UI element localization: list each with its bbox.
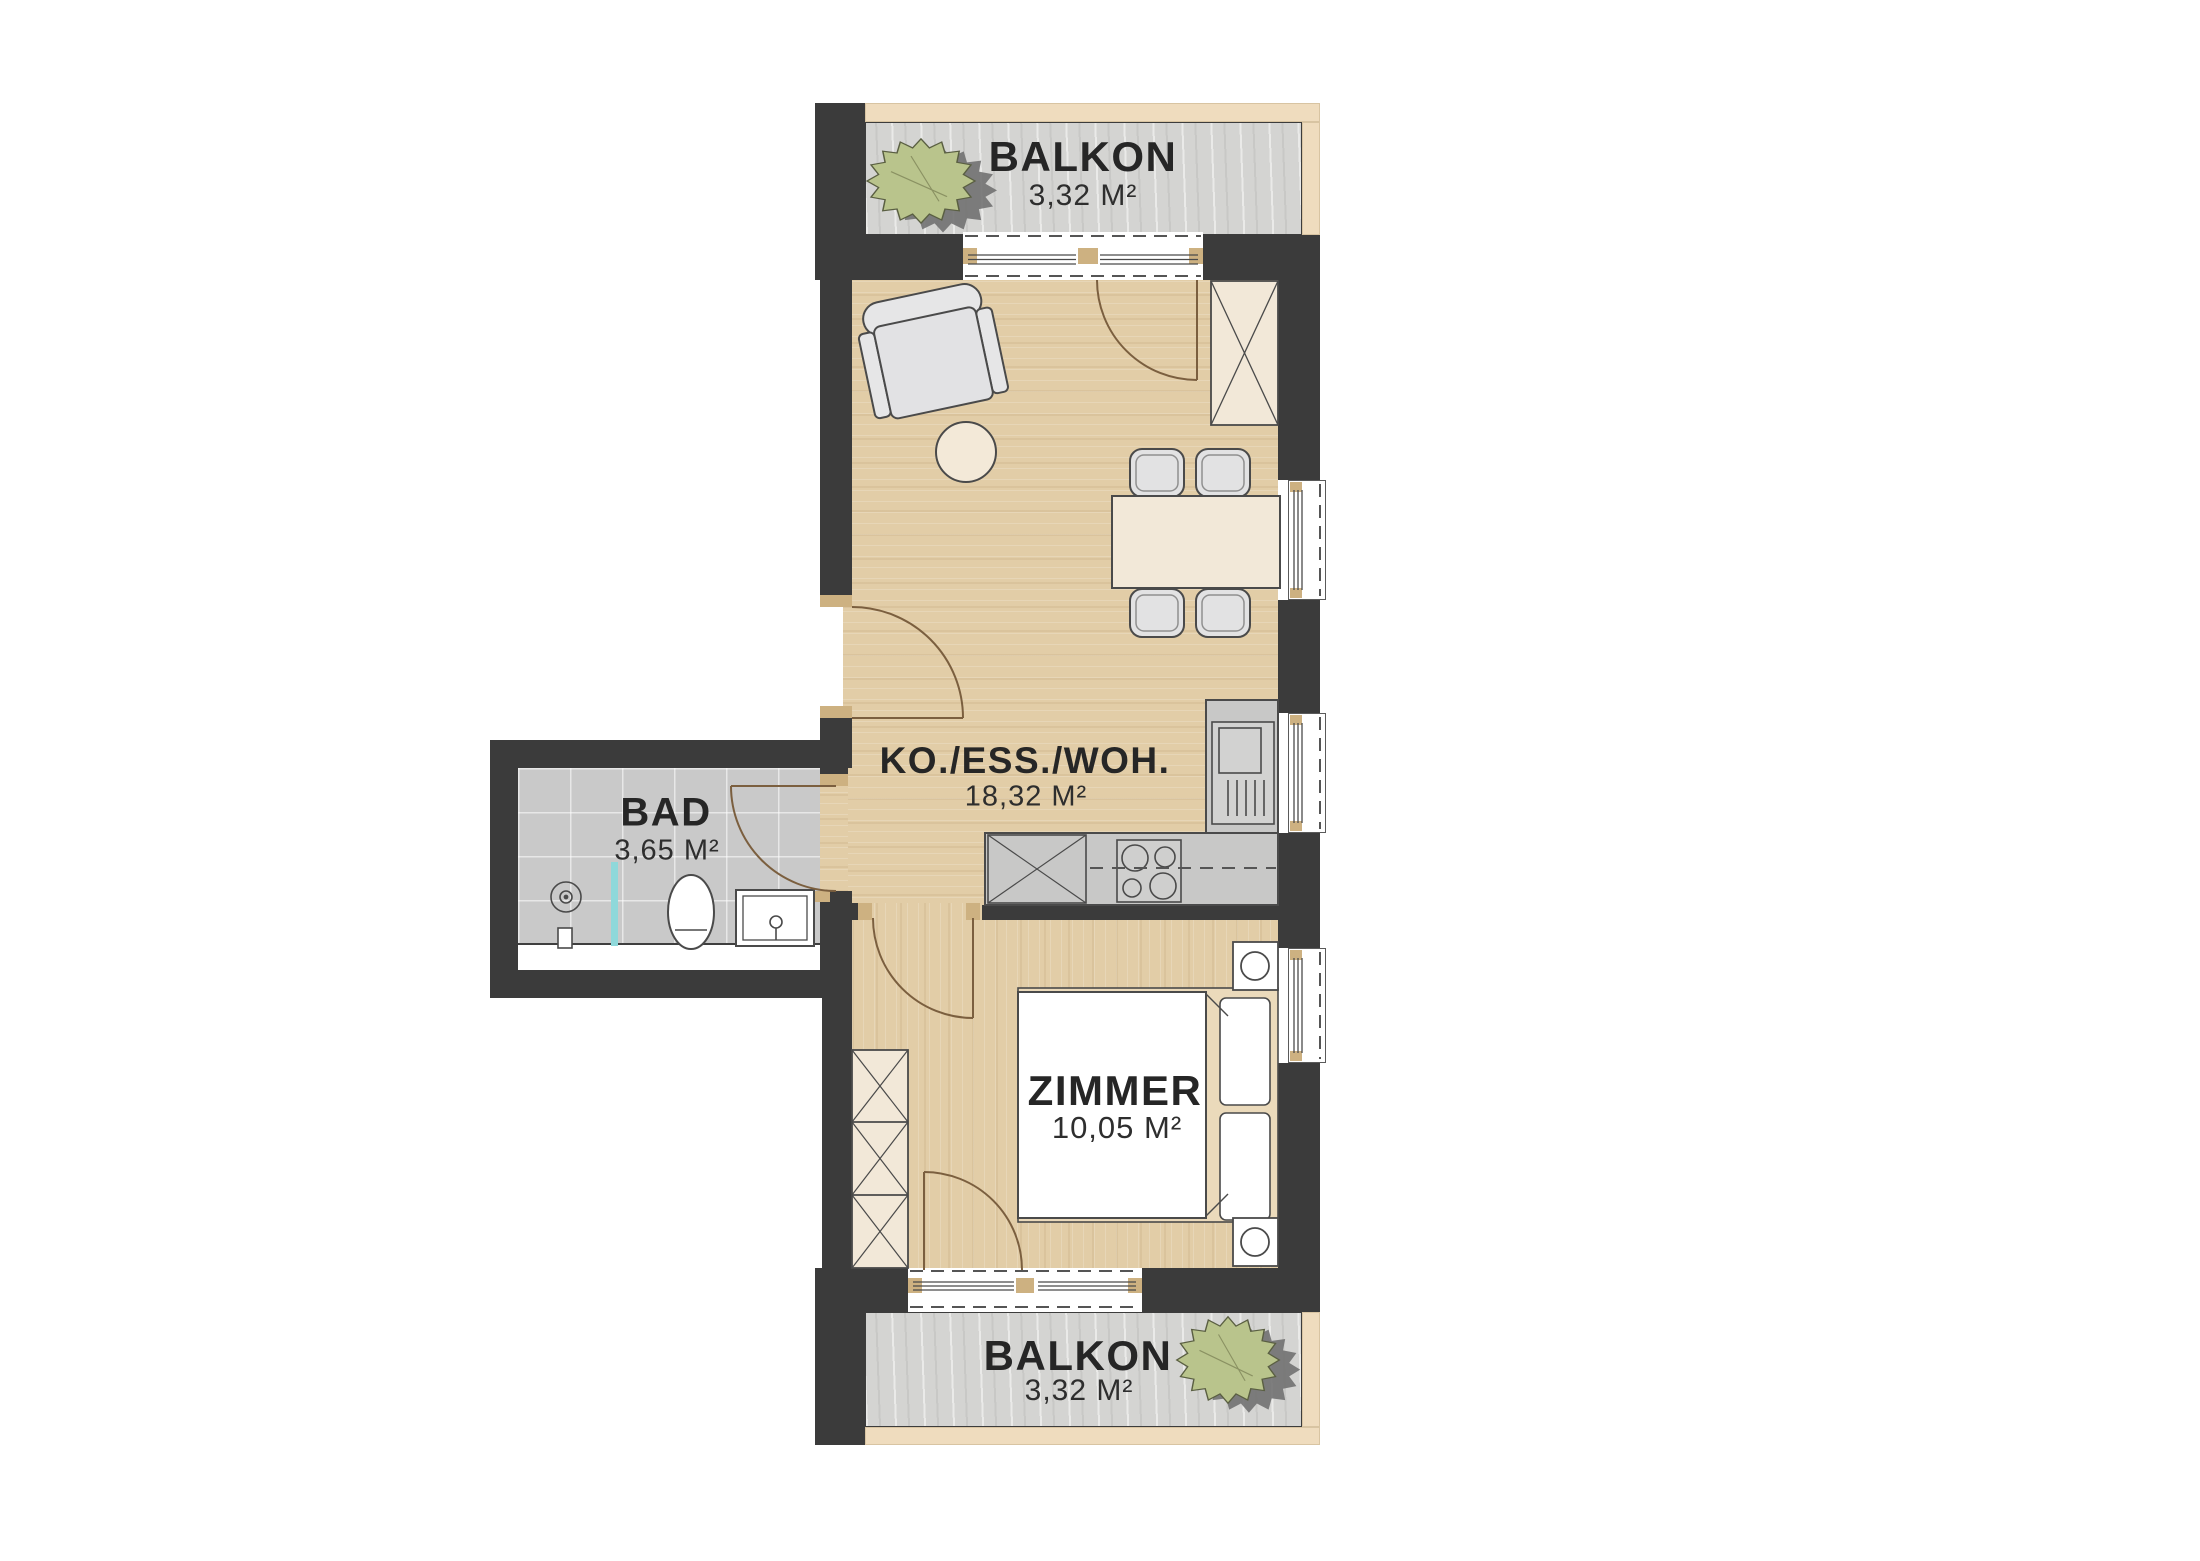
dining-table xyxy=(1112,496,1280,588)
room-label-bad: BAD xyxy=(620,791,711,836)
shower-head xyxy=(551,882,581,948)
floor-plan: BALKON 3,32 M² KO./ESS./WOH. 18,32 M² BA… xyxy=(0,0,2200,1561)
wardrobe-bedroom xyxy=(852,1050,908,1268)
nightstand xyxy=(1233,942,1278,990)
armchair xyxy=(852,279,1010,423)
room-area-bad: 3,65 M² xyxy=(614,835,719,868)
kitchen-sink-unit xyxy=(988,835,1086,903)
room-label-zimmer: ZIMMER xyxy=(1028,1067,1203,1115)
room-label-wohnen: KO./ESS./WOH. xyxy=(880,740,1171,782)
room-area-zimmer: 10,05 M² xyxy=(1052,1110,1182,1146)
bath-sink xyxy=(736,890,814,946)
plant-icon xyxy=(867,139,997,233)
side-table xyxy=(936,422,996,482)
toilet xyxy=(668,875,714,949)
stove xyxy=(1117,840,1181,902)
plant-icon xyxy=(1177,1317,1301,1413)
wardrobe-living xyxy=(1211,281,1278,425)
room-area-balkon-top: 3,32 M² xyxy=(1029,179,1138,213)
room-area-balkon-bottom: 3,32 M² xyxy=(1025,1374,1134,1408)
shower-glass xyxy=(611,862,618,946)
room-area-wohnen: 18,32 M² xyxy=(965,781,1087,814)
room-label-balkon-top: BALKON xyxy=(989,133,1178,181)
room-label-balkon-bottom: BALKON xyxy=(984,1332,1173,1380)
fridge xyxy=(1212,722,1274,824)
nightstand xyxy=(1233,1218,1278,1266)
